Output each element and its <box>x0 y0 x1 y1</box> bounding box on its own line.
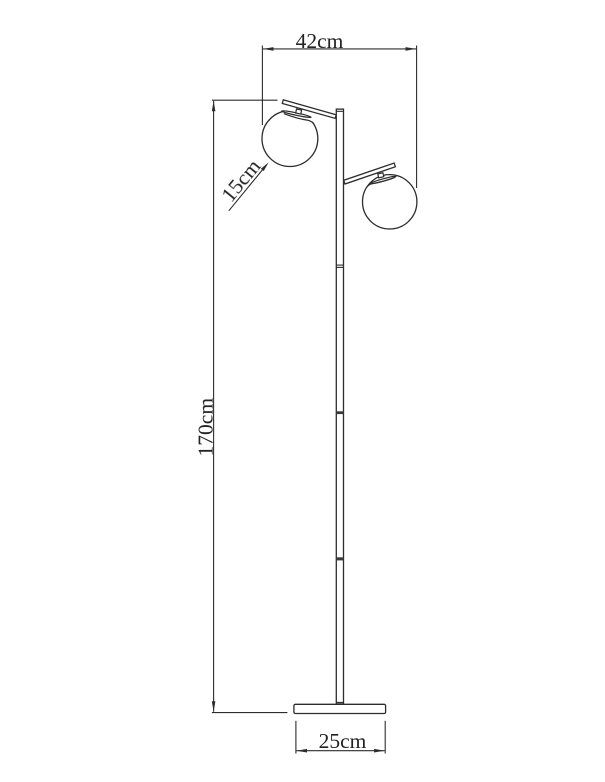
svg-text:170cm: 170cm <box>194 398 218 457</box>
svg-text:42cm: 42cm <box>296 29 344 53</box>
svg-text:25cm: 25cm <box>319 729 367 753</box>
